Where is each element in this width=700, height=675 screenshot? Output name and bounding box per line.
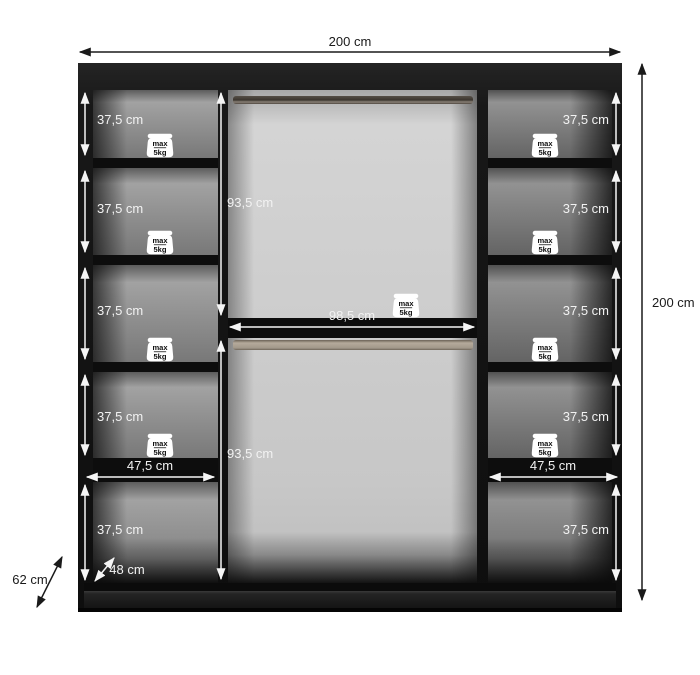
dim-label-left-shelf-1: 37,5 cm: [97, 112, 143, 127]
bottom-edge: [78, 608, 622, 612]
hanging-rail-bottom: [233, 340, 473, 350]
dim-label-right-shelf-4: 37,5 cm: [563, 409, 609, 424]
weight-limit-icon: [532, 338, 559, 362]
weight-limit-icon: [532, 434, 559, 458]
weight-limit-icon: [147, 338, 174, 362]
dim-label-total-width: 200 cm: [329, 34, 372, 49]
left-shelf-2: [93, 255, 218, 265]
dim-label-hanging-width: 98,5 cm: [329, 308, 375, 323]
weight-limit-icon: [147, 134, 174, 158]
dim-label-total-depth: 62 cm: [12, 572, 47, 587]
dim-label-left-shelf-3: 37,5 cm: [97, 303, 143, 318]
dim-label-right-shelf-width: 47,5 cm: [530, 458, 576, 473]
left-shelf-1: [93, 158, 218, 168]
dim-label-right-shelf-1: 37,5 cm: [563, 112, 609, 127]
dim-label-right-shelf-3: 37,5 cm: [563, 303, 609, 318]
wardrobe-dimension-diagram: max 5kg: [0, 0, 700, 675]
dim-label-hanging-bottom: 93,5 cm: [227, 446, 273, 461]
plinth: [84, 591, 616, 610]
dim-label-left-shelf-4: 37,5 cm: [97, 409, 143, 424]
weight-limit-icon: [532, 134, 559, 158]
dim-label-left-shelf-width: 47,5 cm: [127, 458, 173, 473]
hanging-rail-top: [233, 96, 473, 104]
weight-limit-icon: [393, 294, 420, 318]
dim-label-usable-depth: 48 cm: [109, 562, 144, 577]
right-shelf-1: [488, 158, 612, 168]
right-shelf-3: [488, 362, 612, 372]
weight-limit-icon: [147, 231, 174, 255]
dim-label-hanging-top: 93,5 cm: [227, 195, 273, 210]
right-shelf-2: [488, 255, 612, 265]
dim-label-left-shelf-5: 37,5 cm: [97, 522, 143, 537]
diagram-canvas: max 5kg: [0, 0, 700, 675]
dim-label-right-shelf-2: 37,5 cm: [563, 201, 609, 216]
left-shelf-3: [93, 362, 218, 372]
dim-label-left-shelf-2: 37,5 cm: [97, 201, 143, 216]
weight-limit-icon: [532, 231, 559, 255]
dim-label-right-shelf-5: 37,5 cm: [563, 522, 609, 537]
weight-limit-icon: [147, 434, 174, 458]
right-floor-shadow: [488, 538, 612, 583]
bottom-panel: [84, 583, 616, 591]
wardrobe-base: [78, 532, 622, 612]
dim-label-total-height: 200 cm: [652, 295, 695, 310]
middle-floor-shadow: [228, 532, 477, 583]
